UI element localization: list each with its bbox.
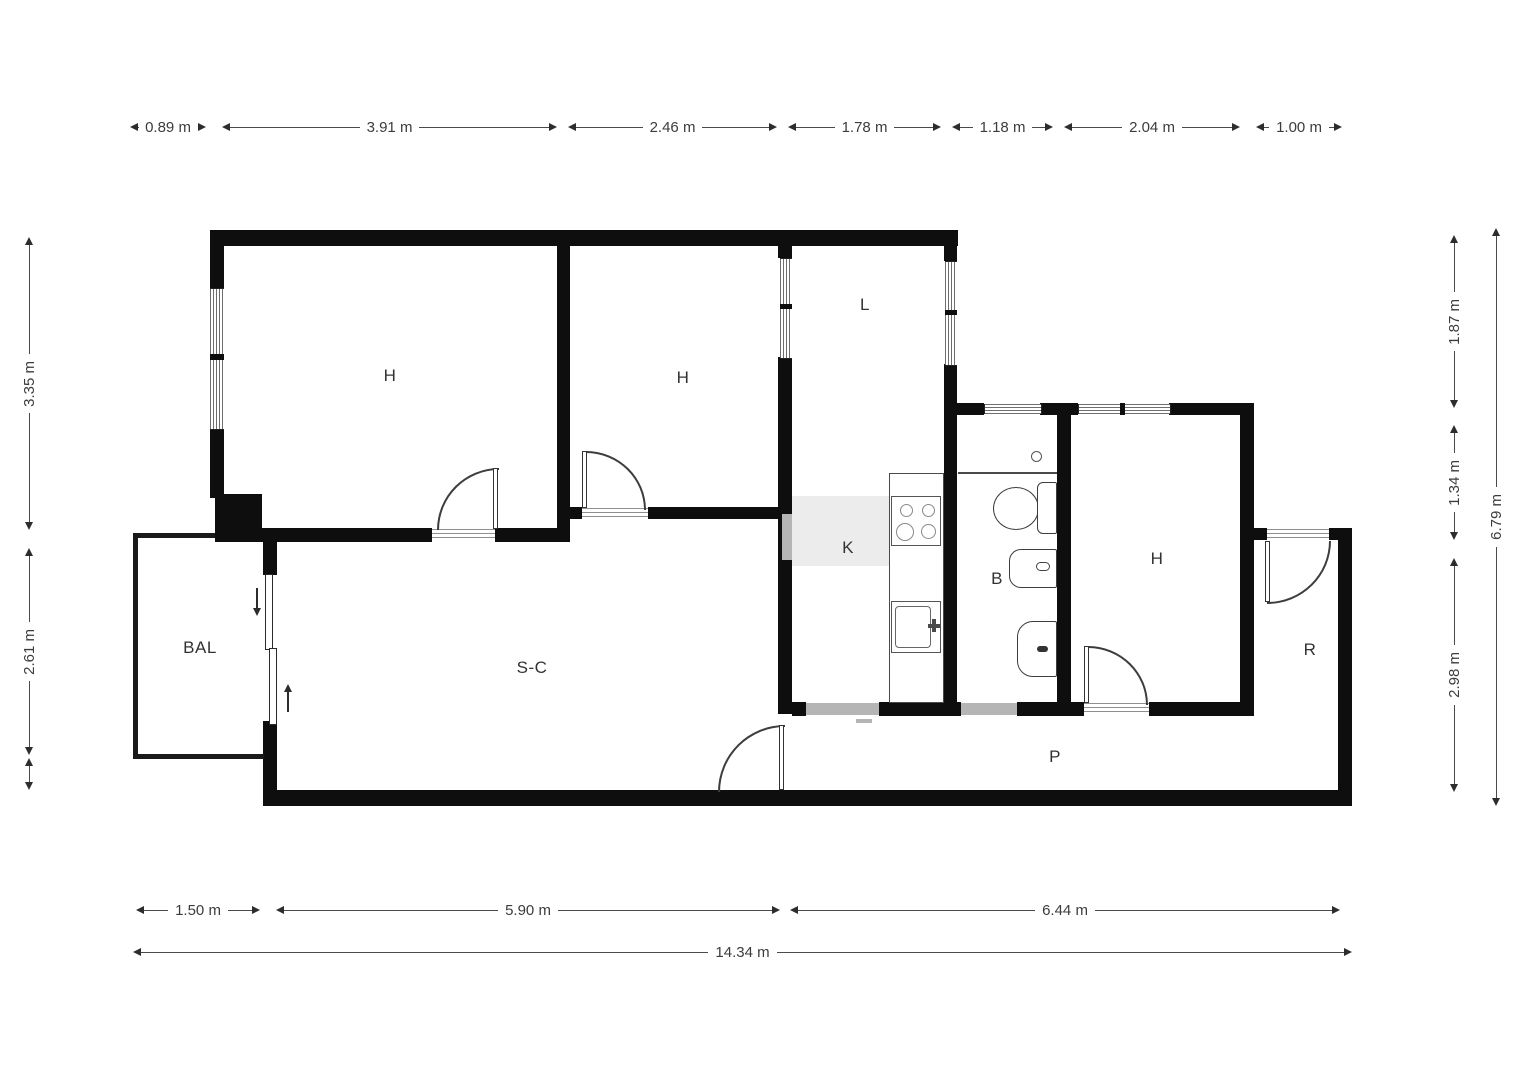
dim-label: 2.61 m [21, 622, 38, 682]
dim-label: 3.35 m [21, 354, 38, 414]
arrow-down-icon [25, 522, 33, 530]
door-leaf-living-room [779, 725, 784, 790]
wall-segment [1017, 702, 1084, 716]
room-label-bedroom-1: H [384, 366, 397, 386]
arrow-left-icon [133, 948, 141, 956]
dim-bottom-0: 1.50 m [136, 897, 260, 923]
door-arc-bedroom-3 [1088, 646, 1148, 705]
wall-segment [210, 230, 958, 246]
step-mark [856, 719, 872, 723]
door-arc-bedroom-2 [586, 451, 646, 510]
dim-left-1: 2.61 m [16, 548, 42, 755]
bathroom-opening [961, 703, 1017, 715]
wall-segment [1149, 702, 1254, 716]
wall-segment [210, 428, 224, 498]
dim-label: 1.50 m [168, 902, 228, 919]
dim-label: 6.79 m [1488, 487, 1505, 547]
dim-label: 1.87 m [1446, 292, 1463, 352]
wall-segment [792, 702, 806, 716]
toilet-tank [1037, 482, 1057, 534]
shower-drain-icon [1031, 451, 1042, 462]
arrow-right-icon [252, 906, 260, 914]
arrow-right-icon [1045, 123, 1053, 131]
dim-left-small [16, 758, 42, 790]
toilet-bowl [993, 487, 1039, 530]
arrow-up-icon [1450, 235, 1458, 243]
faucet-icon [928, 624, 940, 628]
dim-label: 1.18 m [973, 119, 1033, 136]
washbasin-tap-icon [1036, 562, 1050, 571]
arrow-left-icon [1256, 123, 1264, 131]
room-label-corridor: P [1049, 747, 1061, 767]
arrow-left-icon [790, 906, 798, 914]
arrow-right-icon [1344, 948, 1352, 956]
wall-segment [1338, 528, 1352, 806]
door-leaf-entry [1265, 541, 1270, 602]
dim-right-0: 1.87 m [1441, 235, 1467, 408]
dim-top-2: 2.46 m [568, 114, 777, 140]
dim-top-1: 3.91 m [222, 114, 557, 140]
arrow-down-icon [1450, 784, 1458, 792]
door-leaf-bedroom-1 [493, 468, 498, 529]
dim-label: 2.46 m [643, 119, 703, 136]
dim-label: 3.91 m [360, 119, 420, 136]
dim-bottom-total: 14.34 m [133, 939, 1352, 965]
wall-segment [210, 230, 224, 288]
dim-right-1: 1.34 m [1441, 425, 1467, 540]
balcony-wall [136, 533, 215, 538]
arrow-right-icon [769, 123, 777, 131]
wall-segment [944, 364, 957, 714]
door-leaf-bedroom-3 [1084, 646, 1089, 703]
wall-segment [648, 507, 792, 519]
wall-segment [1057, 415, 1071, 714]
wall-segment [944, 246, 957, 261]
arrow-down-icon [1492, 798, 1500, 806]
arrow-down-icon [1450, 400, 1458, 408]
balcony-wall [136, 754, 264, 759]
window-divider [780, 304, 792, 309]
balcony-wall [133, 533, 138, 759]
room-label-bathroom: B [991, 569, 1003, 589]
arrow-left-icon [136, 906, 144, 914]
arrow-down-icon [253, 608, 261, 616]
room-label-kitchen: K [842, 538, 854, 558]
arrow-right-icon [1334, 123, 1342, 131]
dim-label: 1.34 m [1446, 453, 1463, 513]
arrow-left-icon [788, 123, 796, 131]
dim-right-total: 6.79 m [1483, 228, 1509, 806]
dim-top-4: 1.18 m [952, 114, 1053, 140]
arrow-left-icon [276, 906, 284, 914]
wall-segment [557, 230, 570, 542]
arrow-up-icon [1492, 228, 1500, 236]
dim-top-3: 1.78 m [788, 114, 941, 140]
window-divider [945, 310, 957, 315]
arrow-up-icon [284, 684, 292, 692]
wall-segment [954, 403, 984, 415]
arrow-right-icon [1332, 906, 1340, 914]
wall-segment [1240, 403, 1254, 714]
sliding-door-panel [265, 574, 273, 650]
stove-burner-icon [921, 524, 936, 539]
arrow-left-icon [952, 123, 960, 131]
door-arc-bedroom-1 [437, 468, 499, 530]
window-divider [210, 354, 224, 360]
dim-label: 1.78 m [835, 119, 895, 136]
arrow-down-icon [25, 747, 33, 755]
arrow-right-icon [933, 123, 941, 131]
dim-right-2: 2.98 m [1441, 558, 1467, 792]
dim-label: 2.98 m [1446, 645, 1463, 705]
wall-segment [570, 507, 582, 519]
arrow-down-icon [1450, 532, 1458, 540]
door-leaf-bedroom-2 [582, 451, 587, 508]
floor-plan: 0.89 m 3.91 m 2.46 m 1.78 m 1.18 m 2.04 … [0, 0, 1527, 1080]
stove-burner-icon [922, 504, 935, 517]
dim-label: 6.44 m [1035, 902, 1095, 919]
wall-segment [263, 790, 1352, 806]
slide-direction-line [256, 588, 258, 608]
arrow-right-icon [1232, 123, 1240, 131]
wall-segment [1254, 528, 1267, 540]
dim-top-0: 0.89 m [130, 114, 206, 140]
room-label-bedroom-3: H [1151, 549, 1164, 569]
arrow-left-icon [130, 123, 138, 131]
door-arc-entry [1267, 541, 1331, 604]
dim-bottom-2: 6.44 m [790, 897, 1340, 923]
room-label-entry-hall: R [1304, 640, 1317, 660]
arrow-up-icon [1450, 425, 1458, 433]
arrow-right-icon [549, 123, 557, 131]
kitchen-side-opening [782, 514, 792, 560]
shower-line [958, 472, 1057, 474]
arrow-left-icon [1064, 123, 1072, 131]
window [984, 404, 1042, 414]
door-arc-living-room [718, 725, 785, 792]
stove-burner-icon [900, 504, 913, 517]
room-label-bedroom-2: H [677, 368, 690, 388]
dim-label: 14.34 m [708, 944, 776, 961]
sink-basin [895, 606, 931, 648]
wall-pillar [215, 494, 262, 542]
dim-top-6: 1.00 m [1256, 114, 1342, 140]
arrow-left-icon [222, 123, 230, 131]
arrow-left-icon [568, 123, 576, 131]
dim-top-5: 2.04 m [1064, 114, 1240, 140]
wall-segment [778, 246, 792, 258]
wall-segment [1040, 403, 1078, 415]
wall-segment [262, 528, 432, 542]
wall-segment [263, 533, 277, 575]
washbasin [1009, 549, 1057, 588]
kitchen-opening [806, 703, 879, 715]
room-label-living-dining: S-C [517, 658, 548, 678]
stove-burner-icon [896, 523, 914, 541]
arrow-up-icon [1450, 558, 1458, 566]
dim-label: 5.90 m [498, 902, 558, 919]
dim-label: 2.04 m [1122, 119, 1182, 136]
arrow-right-icon [198, 123, 206, 131]
sliding-door-panel [269, 648, 277, 725]
door-threshold [432, 529, 495, 540]
arrow-up-icon [25, 758, 33, 766]
bidet-drain-icon [1037, 646, 1048, 652]
arrow-right-icon [772, 906, 780, 914]
room-label-gallery: L [860, 295, 870, 315]
dim-label: 0.89 m [138, 119, 198, 136]
door-threshold [1267, 529, 1329, 540]
dim-left-0: 3.35 m [16, 237, 42, 530]
arrow-up-icon [25, 237, 33, 245]
room-label-balcony: BAL [183, 638, 217, 658]
dim-label: 1.00 m [1269, 119, 1329, 136]
window-divider [1120, 403, 1125, 415]
wall-segment [263, 721, 277, 790]
slide-direction-line [287, 692, 289, 712]
dim-bottom-1: 5.90 m [276, 897, 780, 923]
arrow-down-icon [25, 782, 33, 790]
arrow-up-icon [25, 548, 33, 556]
